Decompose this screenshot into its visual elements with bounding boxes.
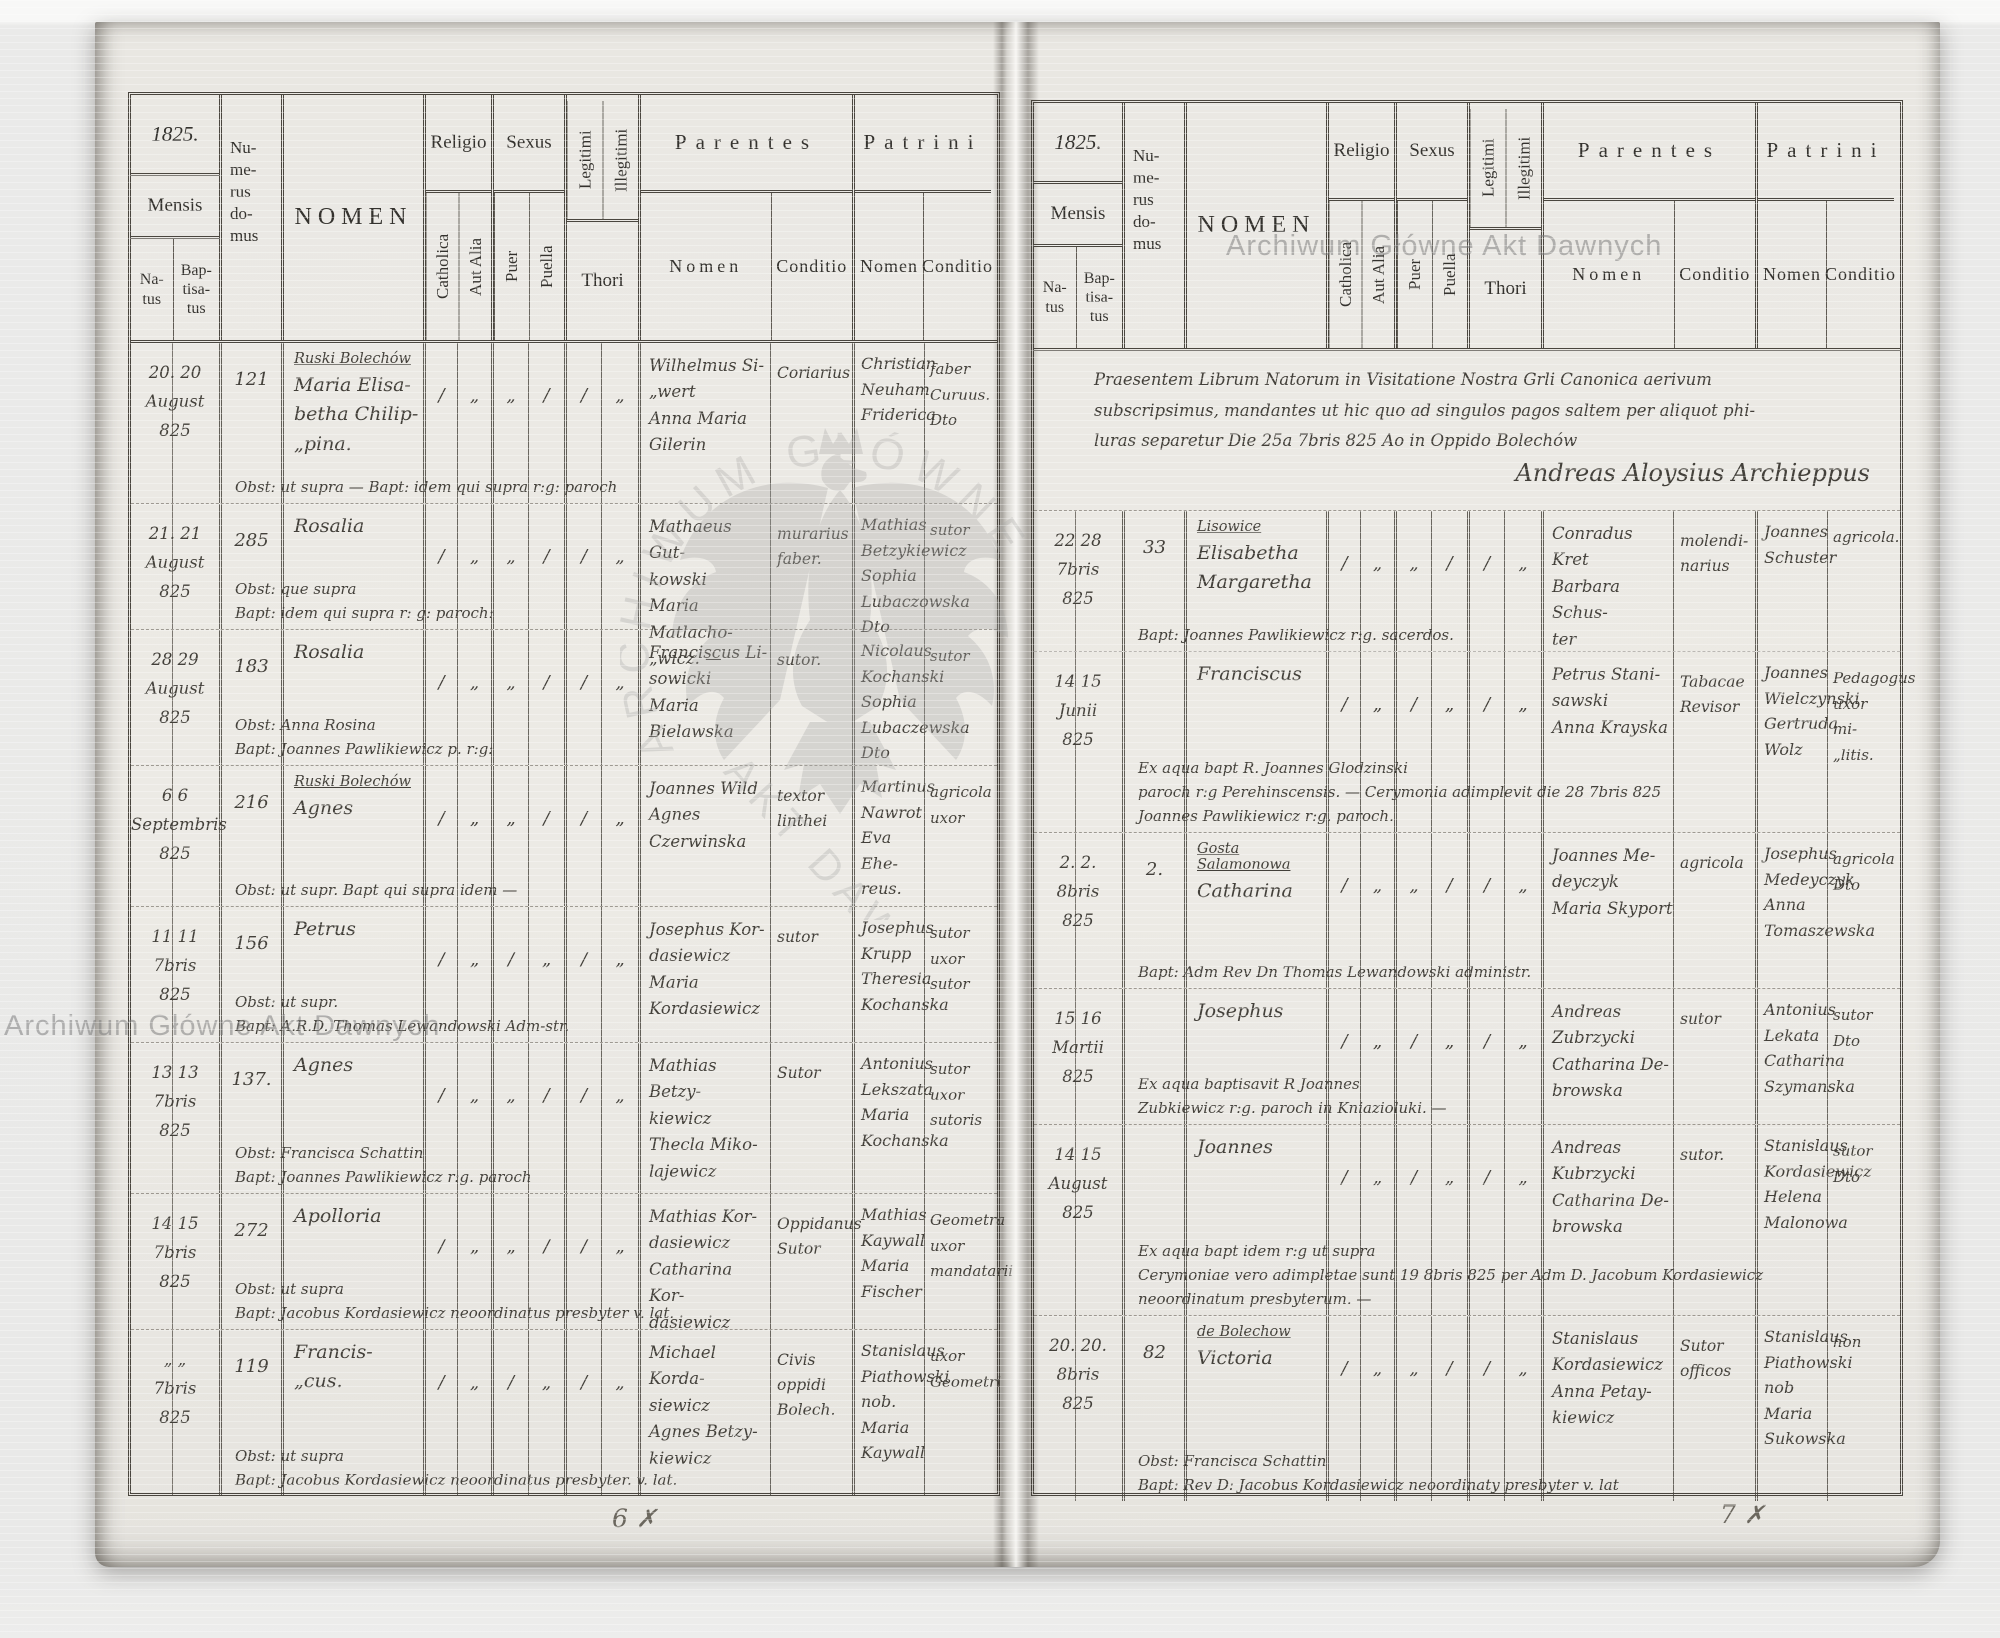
puer-label: Puer [1397,201,1433,348]
place-name: Lisowice [1197,519,1326,535]
child-name: Francis- „cus. [294,1338,423,1397]
child-name: Agnes [294,794,423,823]
row-note: Obst: ut supra Bapt: Jacobus Kordasiewic… [235,1444,935,1492]
row-dates: 22 28 7bris 825 [1034,511,1122,651]
table-row: 20. 20 August 825121Ruski BolechówMaria … [131,343,997,503]
puer-label: Puer [494,193,530,340]
table-row: 14 15 Junii 825Franciscus/„/„/„Petrus St… [1034,651,1900,832]
row-dates: „ „ 7bris 825 [131,1330,219,1496]
legitimi-label: Legitimi [1470,109,1507,227]
sexus-label: Sexus [1397,103,1467,201]
aut-alia-label: Aut Alia [460,193,492,340]
visitation-note: Praesentem Librum Natorum in Visitatione… [1034,351,1900,511]
thori-label: Thori [567,222,638,340]
table-header-left: 1825. Mensis Na- tus Bap- tisa- tus Nu- … [131,95,997,343]
patrini-label: Patrini [855,95,991,193]
baptisatus-label: Bap- tisa- tus [173,239,219,340]
column-godparents: Patrini Nomen Conditio [852,95,991,340]
catholica-label: Catholica [426,193,460,340]
parents-nomen-label: Nomen [1544,201,1674,348]
child-name: Joannes [1197,1133,1326,1162]
place-name: Ruski Bolechów [294,774,423,790]
child-name: Rosalia [294,512,423,541]
mensis-label: Mensis [131,176,219,239]
column-parents: Parentes Nomen Conditio [638,95,852,340]
row-dates: 14 15 August 825 [1034,1125,1122,1315]
row-note: Obst: ut supra Bapt: Jacobus Kordasiewic… [235,1277,935,1325]
table-header-right: 1825. Mensis Na- tus Bap- tisa- tus Nu- … [1034,103,1900,351]
table-row: 13 13 7bris 825137.Agnes/„„//„Mathias Be… [131,1042,997,1193]
table-row: 15 16 Martii 825Josephus/„/„/„Andreas Zu… [1034,988,1900,1124]
sexus-label: Sexus [494,95,564,193]
illegitimi-label: Illegitimi [604,101,639,219]
column-sex: Sexus Puer Puella [491,95,564,340]
left-page: 1825. Mensis Na- tus Bap- tisa- tus Nu- … [128,92,1000,1496]
child-name: Victoria [1197,1344,1326,1373]
religio-label: Religio [1329,103,1394,201]
mensis-label: Mensis [1034,184,1122,247]
godparents-nomen-label: Nomen [855,193,923,340]
aut-alia-label: Aut Alia [1363,201,1395,348]
column-legitimacy: Legitimi Illegitimi Thori [564,95,638,340]
right-page: 1825. Mensis Na- tus Bap- tisa- tus Nu- … [1031,100,1903,1496]
row-note: Obst: ut supr. Bapt qui supra idem — [235,878,935,902]
page-fold [993,22,1039,1567]
row-dates: 20. 20 August 825 [131,343,219,503]
column-house-number: Nu- me- rus do- mus [219,95,281,340]
column-religion: Religio Catholica Aut Alia [423,95,491,340]
natus-label: Na- tus [131,239,173,340]
row-note: Obst: que supra Bapt: idem qui supra r: … [235,577,935,625]
child-name: Petrus [294,915,423,944]
table-row: 22 28 7bris 82533LisowiceElisabetha Marg… [1034,511,1900,651]
row-note: Bapt: Adm Rev Dn Thomas Lewandowski admi… [1138,960,1838,984]
numerus-domus-label: Nu- me- rus do- mus [222,95,281,247]
column-legitimacy: Legitimi Illegitimi Thori [1467,103,1541,348]
table-body-right: Praesentem Librum Natorum in Visitatione… [1034,351,1900,1501]
child-name: Elisabetha Margaretha [1197,539,1326,598]
row-dates: 14 15 Junii 825 [1034,652,1122,832]
row-note: Ex aqua bapt R. Joannes Glodzinski paroc… [1138,756,1838,828]
parents-conditio-label: Conditio [771,193,852,340]
catholica-label: Catholica [1329,201,1363,348]
watermark-top-right: Archiwum Główne Akt Dawnych [1226,230,1662,263]
column-dates: 1825. Mensis Na- tus Bap- tisa- tus [1034,103,1122,348]
place-name: Gosta Salamonowa [1197,841,1326,873]
nomen-label: NOMEN [1187,103,1326,348]
nomen-label: NOMEN [284,95,423,340]
row-note: Ex aqua baptisavit R Joannes Zubkiewicz … [1138,1072,1838,1120]
year-label: 1825. [131,95,219,176]
puella-label: Puella [530,193,564,340]
religio-label: Religio [426,95,491,193]
table-row: 14 15 7bris 825272Apolloria/„„//„Mathias… [131,1193,997,1329]
godparents-conditio-label: Conditio [1826,201,1894,348]
watermark-bottom-left: Archiwum Główne Akt Dawnych [4,1010,440,1043]
table-row: 21. 21 August 825285Rosalia/„„//„Mathaeu… [131,503,997,629]
column-sex: Sexus Puer Puella [1394,103,1467,348]
place-name: de Bolechow [1197,1324,1326,1340]
table-row: 2. 2. 8bris 8252.Gosta SalamonowaCathari… [1034,832,1900,988]
godparents-nomen-label: Nomen [1758,201,1826,348]
page-number-left: 6 ✗ [612,1504,657,1533]
table-body-left: 20. 20 August 825121Ruski BolechówMaria … [131,343,997,1496]
child-name: Apolloria [294,1202,423,1231]
table-row: 6 6 Septembris 825216Ruski BolechówAgnes… [131,765,997,906]
row-dates: 2. 2. 8bris 825 [1034,833,1122,988]
child-name: Maria Elisa- betha Chilip- „pina. [294,371,423,459]
parents-conditio-label: Conditio [1674,201,1755,348]
legitimi-label: Legitimi [567,101,604,219]
parentes-label: Parentes [1544,103,1755,201]
table-row: 28 29 August 825183Rosalia/„„//„Francisc… [131,629,997,765]
register-sheet: 1825. Mensis Na- tus Bap- tisa- tus Nu- … [95,22,1940,1567]
baptisatus-label: Bap- tisa- tus [1076,247,1122,348]
row-note: Obst: Francisca Schattin Bapt: Rev D: Ja… [1138,1449,1838,1497]
column-name: NOMEN [281,95,423,340]
row-dates: 21. 21 August 825 [131,504,219,629]
patrini-label: Patrini [1758,103,1894,201]
page-number-right: 7 ✗ [1720,1500,1765,1529]
column-godparents: Patrini Nomen Conditio [1755,103,1894,348]
row-dates: 6 6 Septembris 825 [131,766,219,906]
table-row: 14 15 August 825Joannes/„/„/„Andreas Kub… [1034,1124,1900,1315]
child-name: Rosalia [294,638,423,667]
visitation-note-text: Praesentem Librum Natorum in Visitatione… [1094,365,1890,457]
row-dates: 20. 20. 8bris 825 [1034,1316,1122,1501]
column-name: NOMEN [1184,103,1326,348]
natus-label: Na- tus [1034,247,1076,348]
parents-nomen-label: Nomen [641,193,771,340]
row-dates: 28 29 August 825 [131,630,219,765]
column-dates: 1825. Mensis Na- tus Bap- tisa- tus [131,95,219,340]
godparents-conditio-label: Conditio [923,193,991,340]
child-name: Agnes [294,1051,423,1080]
row-note: Bapt: Joannes Pawlikiewicz r:g. sacerdos… [1138,623,1838,647]
numerus-domus-label: Nu- me- rus do- mus [1125,103,1184,255]
row-note: Obst: Anna Rosina Bapt: Joannes Pawlikie… [235,713,935,761]
row-dates: 15 16 Martii 825 [1034,989,1122,1124]
table-row: „ „ 7bris 825119Francis- „cus./„/„/„Mich… [131,1329,997,1496]
child-name: Josephus [1197,997,1326,1026]
child-name: Franciscus [1197,660,1326,689]
place-name: Ruski Bolechów [294,351,423,367]
row-dates: 14 15 7bris 825 [131,1194,219,1329]
puella-label: Puella [1433,201,1467,348]
row-note: Ex aqua bapt idem r:g ut supra Cerymonia… [1138,1239,1838,1311]
visitation-note-signature: Andreas Aloysius Archieppus [1094,459,1890,487]
row-note: Obst: ut supra — Bapt: idem qui supra r:… [235,475,935,499]
illegitimi-label: Illegitimi [1507,109,1542,227]
column-house-number: Nu- me- rus do- mus [1122,103,1184,348]
column-parents: Parentes Nomen Conditio [1541,103,1755,348]
year-label: 1825. [1034,103,1122,184]
row-note: Obst: Francisca Schattin Bapt: Joannes P… [235,1141,935,1189]
row-dates: 13 13 7bris 825 [131,1043,219,1193]
child-name: Catharina [1197,877,1326,906]
table-row: 20. 20. 8bris 82582de BolechowVictoria/„… [1034,1315,1900,1501]
column-religion: Religio Catholica Aut Alia [1326,103,1394,348]
parentes-label: Parentes [641,95,852,193]
